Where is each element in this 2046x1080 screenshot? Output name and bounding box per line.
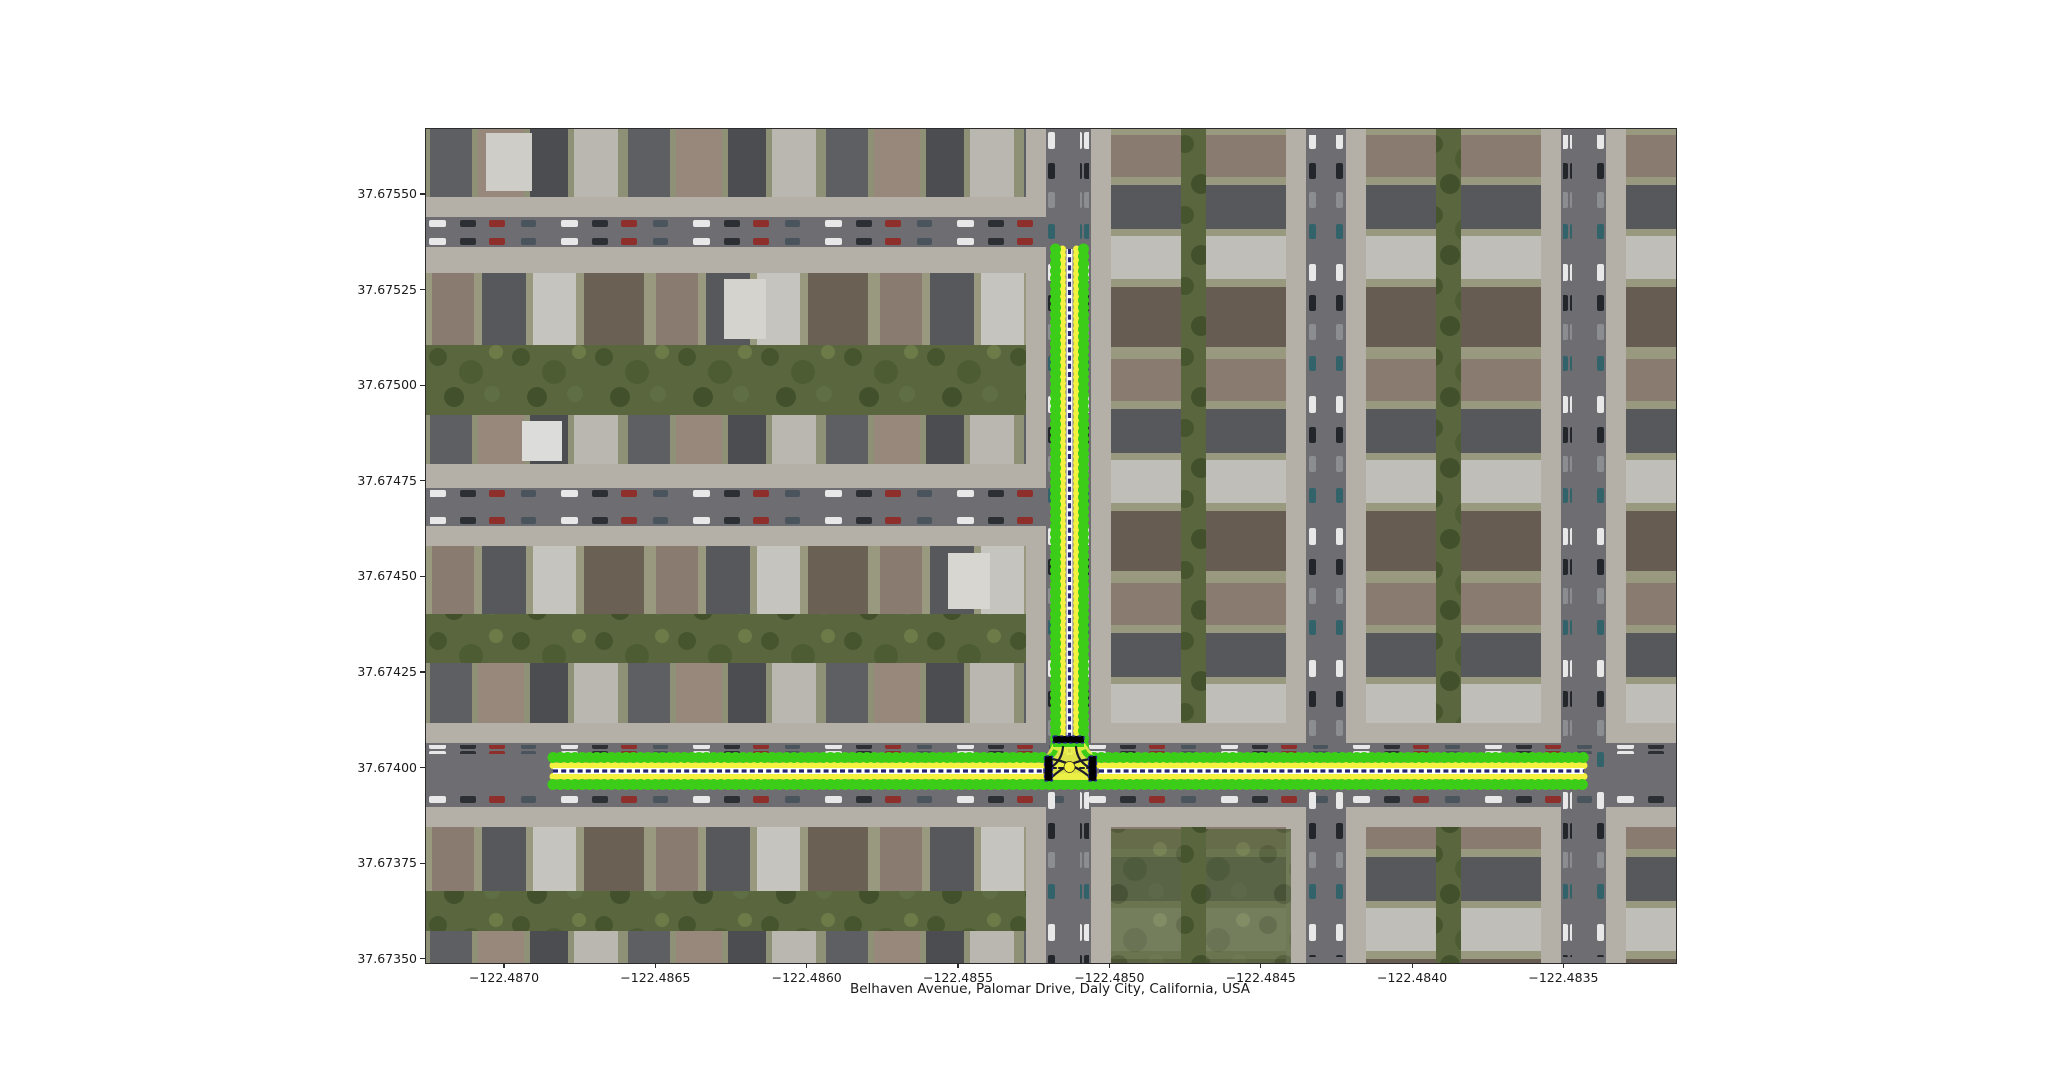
y-tick-mark bbox=[420, 193, 425, 194]
y-tick-label: 37.67350 bbox=[300, 951, 417, 967]
y-tick-label: 37.67525 bbox=[300, 282, 417, 298]
y-tick-mark bbox=[420, 385, 425, 386]
x-tick-mark bbox=[1412, 963, 1413, 968]
x-tick-mark bbox=[1260, 963, 1261, 968]
x-tick-mark bbox=[1563, 963, 1564, 968]
x-tick-mark bbox=[1109, 963, 1110, 968]
y-tick-mark bbox=[420, 480, 425, 481]
junction-node-marker bbox=[1064, 762, 1075, 773]
map-plot-area bbox=[425, 128, 1677, 964]
y-tick-label: 37.67375 bbox=[300, 855, 417, 871]
house-rows-left bbox=[426, 129, 1046, 963]
satellite-basemap bbox=[426, 129, 1676, 963]
y-tick-label: 37.67400 bbox=[300, 760, 417, 776]
y-tick-mark bbox=[420, 863, 425, 864]
y-tick-label: 37.67475 bbox=[300, 473, 417, 489]
y-tick-mark bbox=[420, 289, 425, 290]
x-tick-mark bbox=[806, 963, 807, 968]
stop-bar-west bbox=[1045, 756, 1053, 781]
x-tick-mark bbox=[503, 963, 504, 968]
stop-bar-north bbox=[1053, 736, 1084, 743]
y-tick-mark bbox=[420, 958, 425, 959]
matplotlib-figure: 37.6755037.6752537.6750037.6747537.67450… bbox=[0, 0, 2046, 1080]
y-tick-mark bbox=[420, 767, 425, 768]
x-tick-mark bbox=[655, 963, 656, 968]
y-tick-mark bbox=[420, 576, 425, 577]
y-tick-label: 37.67425 bbox=[300, 664, 417, 680]
y-tick-label: 37.67450 bbox=[300, 568, 417, 584]
stop-bar-east bbox=[1089, 756, 1097, 781]
figure-title: Belhaven Avenue, Palomar Drive, Daly Cit… bbox=[425, 981, 1675, 997]
x-tick-mark bbox=[957, 963, 958, 968]
y-tick-label: 37.67500 bbox=[300, 377, 417, 393]
road-overlay-palomar-drive bbox=[1056, 249, 1084, 755]
y-tick-mark bbox=[420, 671, 425, 672]
y-tick-label: 37.67550 bbox=[300, 186, 417, 202]
